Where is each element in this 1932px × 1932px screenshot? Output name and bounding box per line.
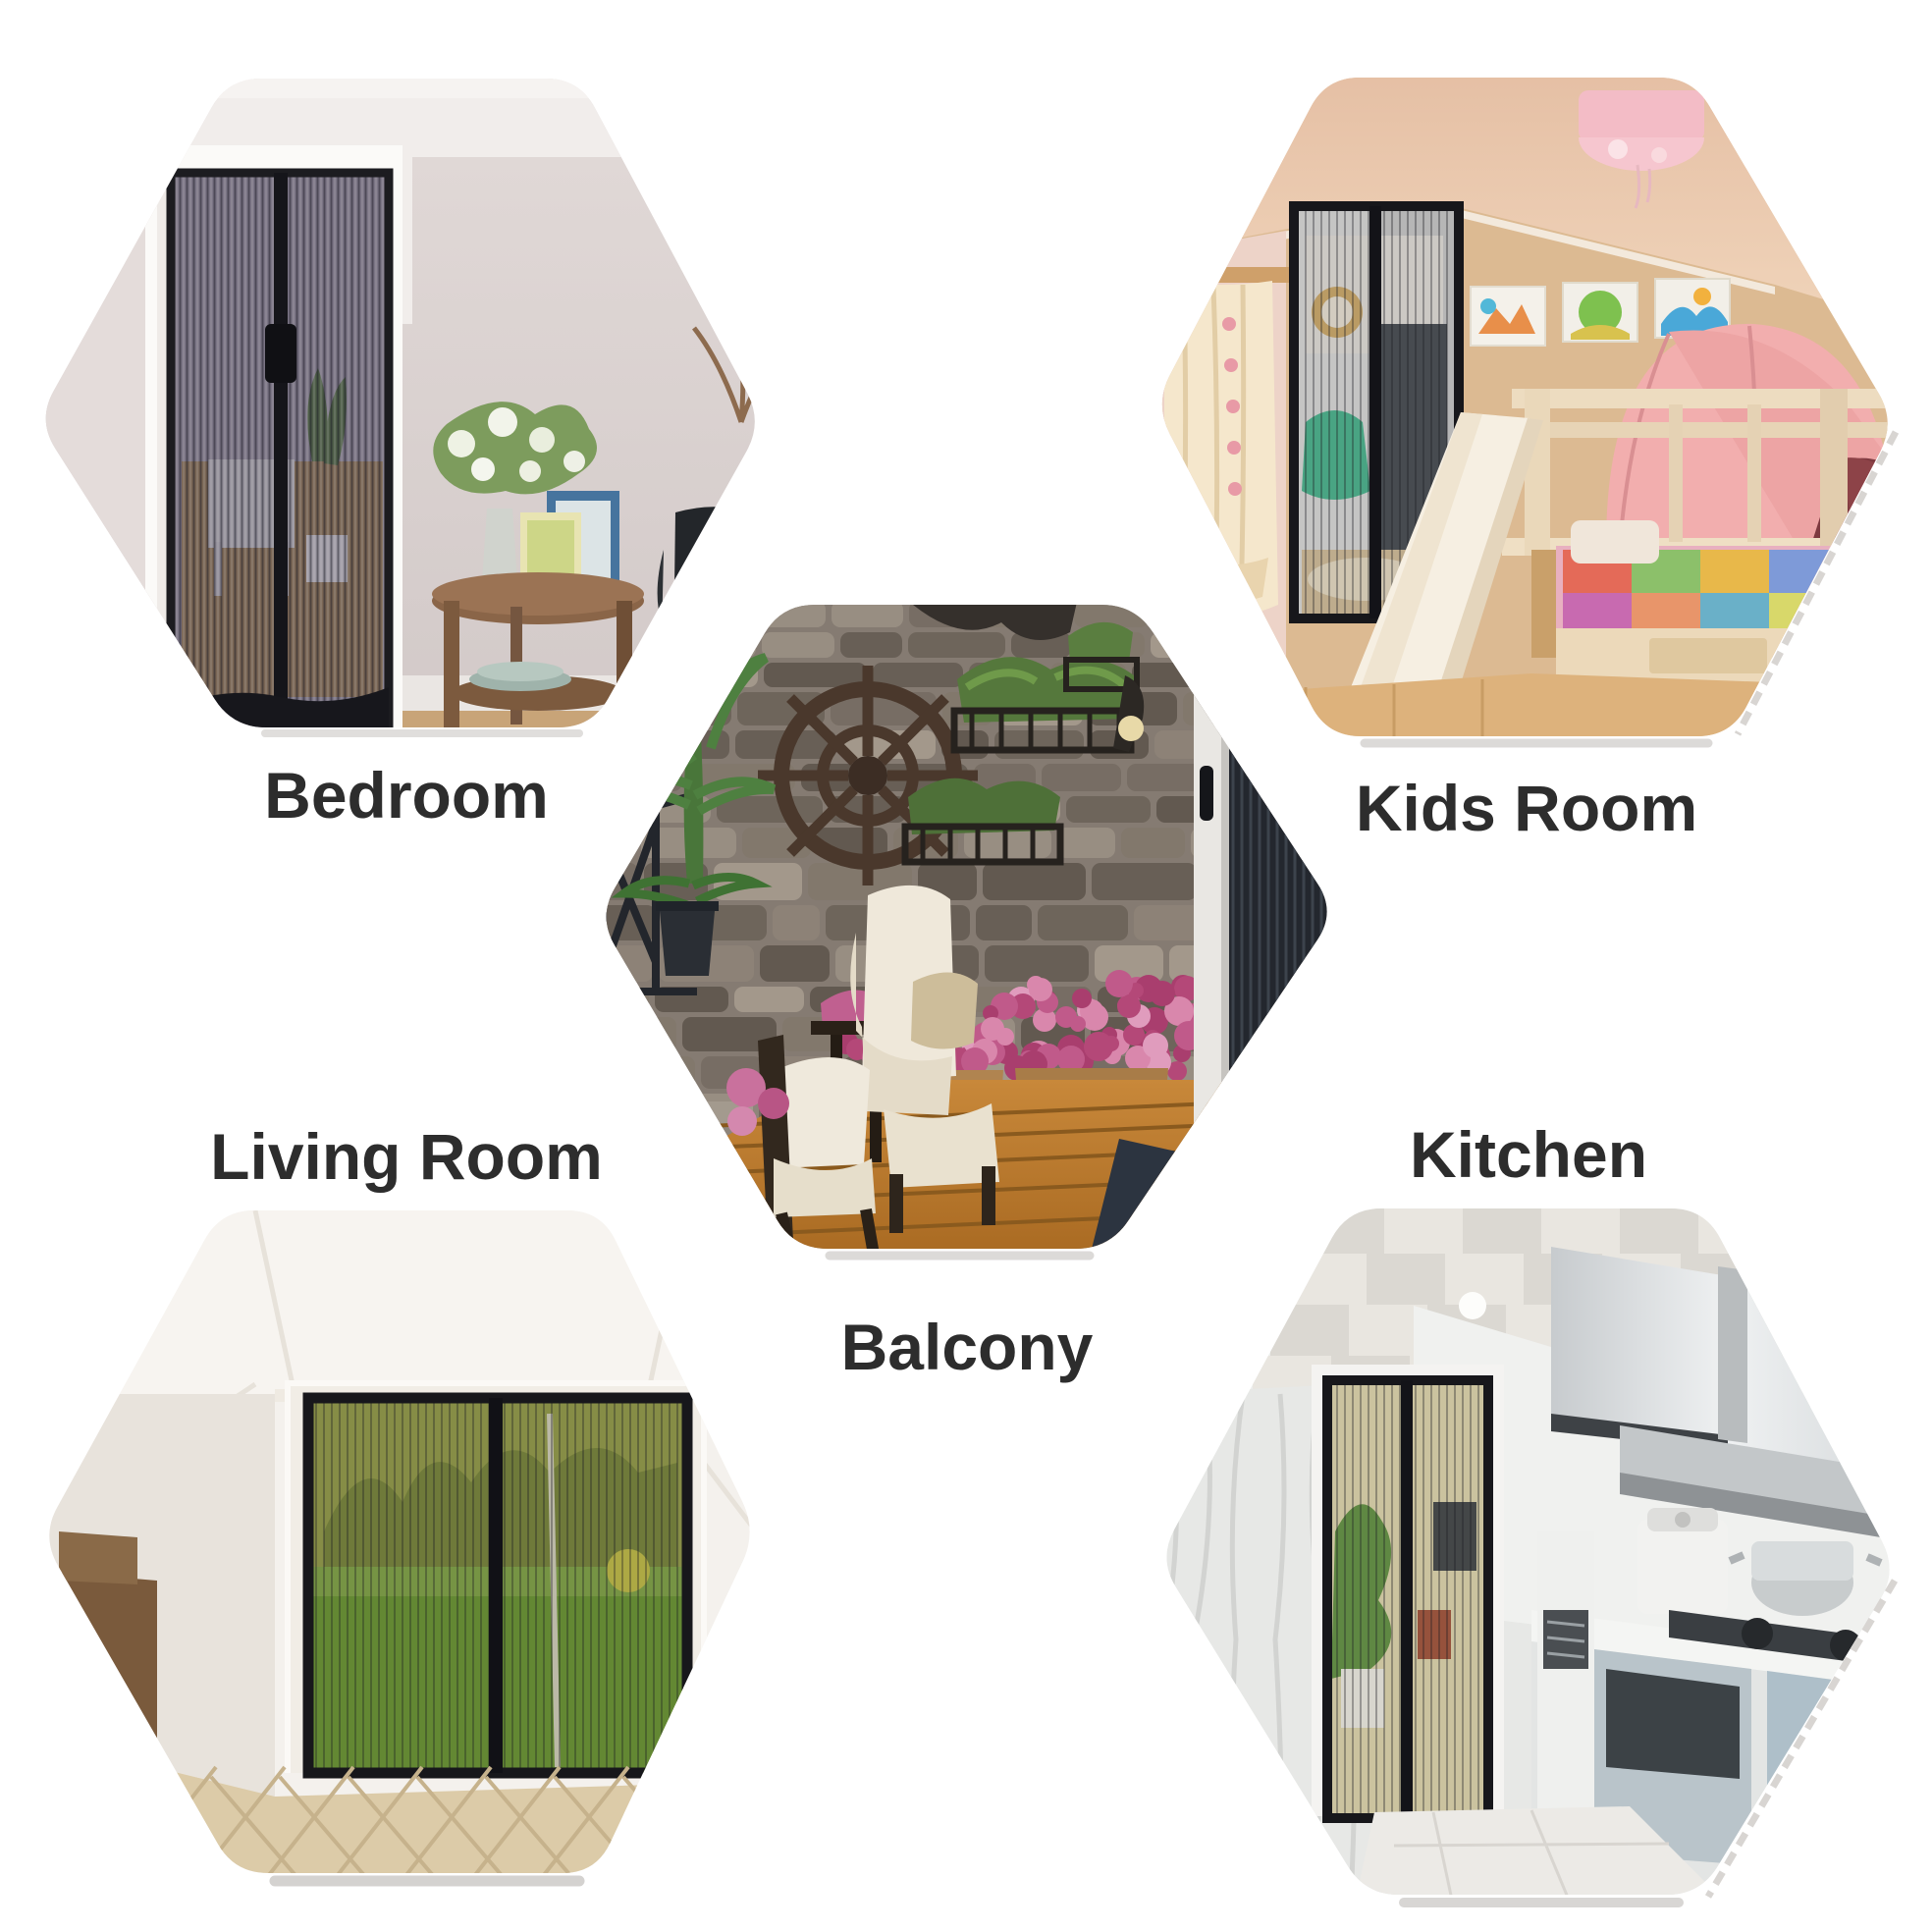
svg-text:Bedroom: Bedroom: [264, 759, 549, 832]
svg-text:Living Room: Living Room: [210, 1120, 603, 1193]
svg-text:Kids Room: Kids Room: [1356, 772, 1697, 844]
svg-text:Balcony: Balcony: [841, 1311, 1094, 1383]
svg-text:Kitchen: Kitchen: [1410, 1118, 1647, 1191]
